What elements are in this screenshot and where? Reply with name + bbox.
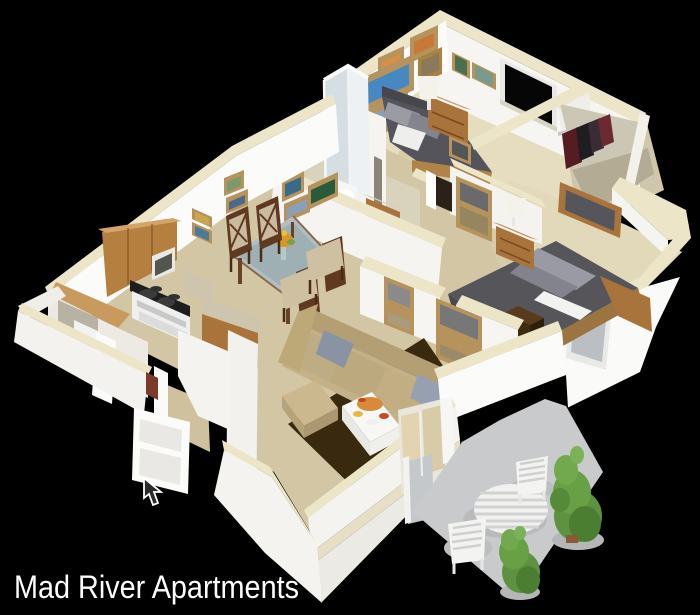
svg-text:Mad River Apartments: Mad River Apartments [14, 569, 299, 605]
